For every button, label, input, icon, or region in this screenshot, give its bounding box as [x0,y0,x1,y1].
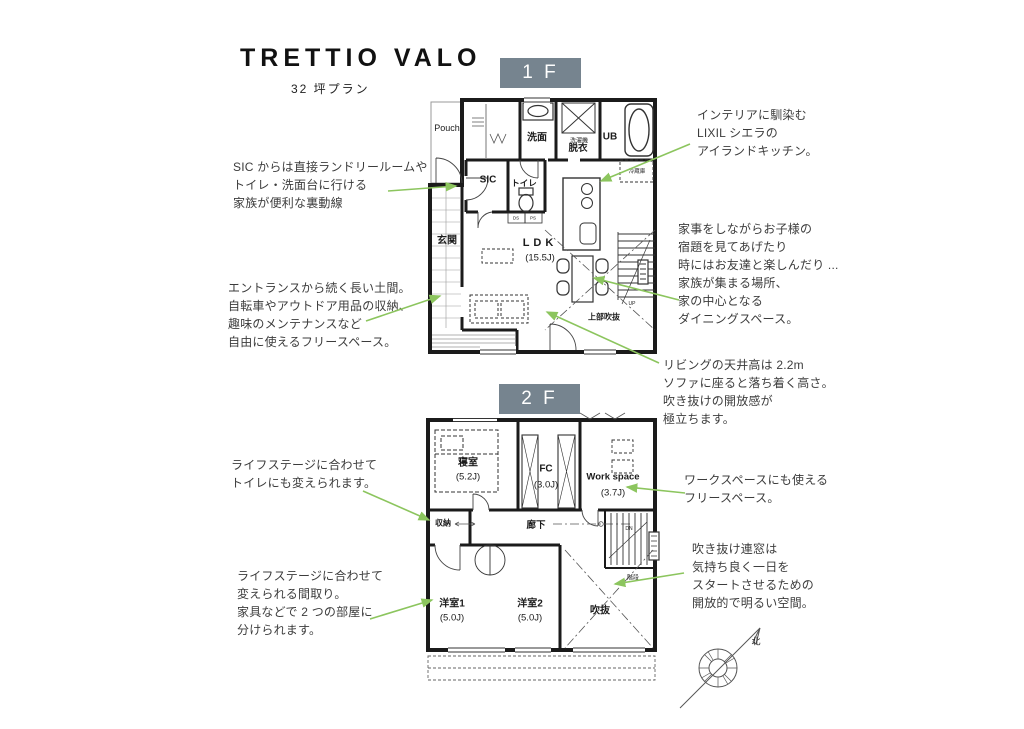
washing-machine [562,103,595,133]
room-label-ps: PS [530,216,536,221]
room-label-toire: トイレ [511,177,537,189]
room-label-senmen: 洗面 [527,129,547,144]
annotation-toilet-2f: ライフステージに合わせて トイレにも変えられます。 [231,456,377,492]
room-label-fc: FC [539,464,552,475]
room-label-youshitsu2: 洋室2 [517,595,543,610]
room-label-workspace-size: (3.7J) [601,488,625,499]
floor-plan-2f-drawing [415,410,665,690]
genkan-tiles [432,187,461,328]
room-label-fc-size: (3.0J) [534,480,558,491]
room-label-youshitsu1: 洋室1 [439,595,465,610]
toilet [519,188,533,212]
compass-north-label: 北 [751,635,760,648]
annotation-living: リビングの天井高は 2.2m ソファに座ると落ち着く高さ。 吹き抜けの開放感が … [663,356,834,428]
interior-walls-1f [462,100,655,352]
room-label-ldk: LDK [523,237,558,249]
room-label-fukinuke: 吹抜 [590,602,610,617]
doma-step-hatch [432,335,515,347]
room-label-datsui: 脱衣 [568,140,587,154]
floor-badge-1f: 1 F [500,58,581,88]
annotation-rooms-2f: ライフステージに合わせて 変えられる間取り。 家具などで 2 つの部屋に 分けら… [237,567,383,639]
room-label-joubufukinuke: 上部吹抜 [588,312,620,323]
low-counter [482,249,513,263]
balcony [428,656,655,680]
stairs-1f [618,232,655,304]
room-label-genkan: 玄関 [437,232,457,247]
room-label-pouch: Pouch [434,123,460,133]
floor-plan-page: TRETTIO VALO 32 坪プラン 1 F 2 F [0,0,1024,729]
room-label-youshitsu2-size: (5.0J) [518,613,542,624]
sofa [470,295,528,323]
annotation-workspace-2f: ワークスペースにも使える フリースペース。 [684,471,828,507]
stairs-2f [609,513,659,565]
windows-2f [448,413,645,654]
room-label-rouka: 廊下 [526,517,545,531]
floor-plan-2f: 寝室 (5.2J) FC (3.0J) Work space (3.7J) 収納… [415,410,665,690]
room-label-ldk-size: (15.5J) [525,253,555,264]
void-marks-2f [565,550,653,648]
room-label-reizouko: 冷蔵庫 [629,167,646,175]
room-label-shuunou: 収納 [435,518,451,529]
room-label-shinshitsu: 寝室 [458,454,478,469]
annotation-sic-route: SIC からは直接ランドリールームや トイレ・洗面台に行ける 家族が便利な裏動線 [233,158,428,212]
compass-icon [665,620,785,720]
annotation-kitchen: インテリアに馴染む LIXIL シエラの アイランドキッチン。 [697,106,818,160]
washbasin [523,103,553,120]
dining-table-set [557,256,608,302]
room-label-sic: SIC [480,175,497,186]
room-label-kaidan: 階段 [627,573,639,582]
floor-plan-1f: Pouch 洗面 洗濯機 脱衣 UB SIC トイレ DS PS 玄関 LDK … [420,88,660,358]
room-label-ub: UB [603,132,617,143]
round-closet-doors [475,545,505,575]
room-label-workspace: Work space [586,472,639,483]
annotation-void-window: 吹き抜け連窓は 気持ち良く一日を スタートさせるための 開放的で明るい空間。 [692,540,814,612]
page-subtitle: 32 坪プラン [291,80,370,97]
workspace-desks [612,440,633,473]
room-label-ds: DS [513,216,519,221]
corridor-centerline [553,522,630,527]
room-label-youshitsu1-size: (5.0J) [440,613,464,624]
room-label-dn: DN [625,526,632,532]
kitchen-island [563,178,600,250]
coat-hanger-marks [472,104,506,158]
bathtub [625,104,653,156]
storage-arrow [455,522,475,526]
page-title: TRETTIO VALO [240,44,481,73]
room-label-shinshitsu-size: (5.2J) [456,472,480,483]
annotation-dining: 家事をしながらお子様の 宿題を見てあげたり 時にはお友達と楽しんだり ... 家… [678,220,839,328]
room-label-up: UP [629,301,636,307]
annotation-doma: エントランスから続く長い土間。 自転車やアウトドア用品の収納、 趣味のメンテナン… [228,279,411,351]
